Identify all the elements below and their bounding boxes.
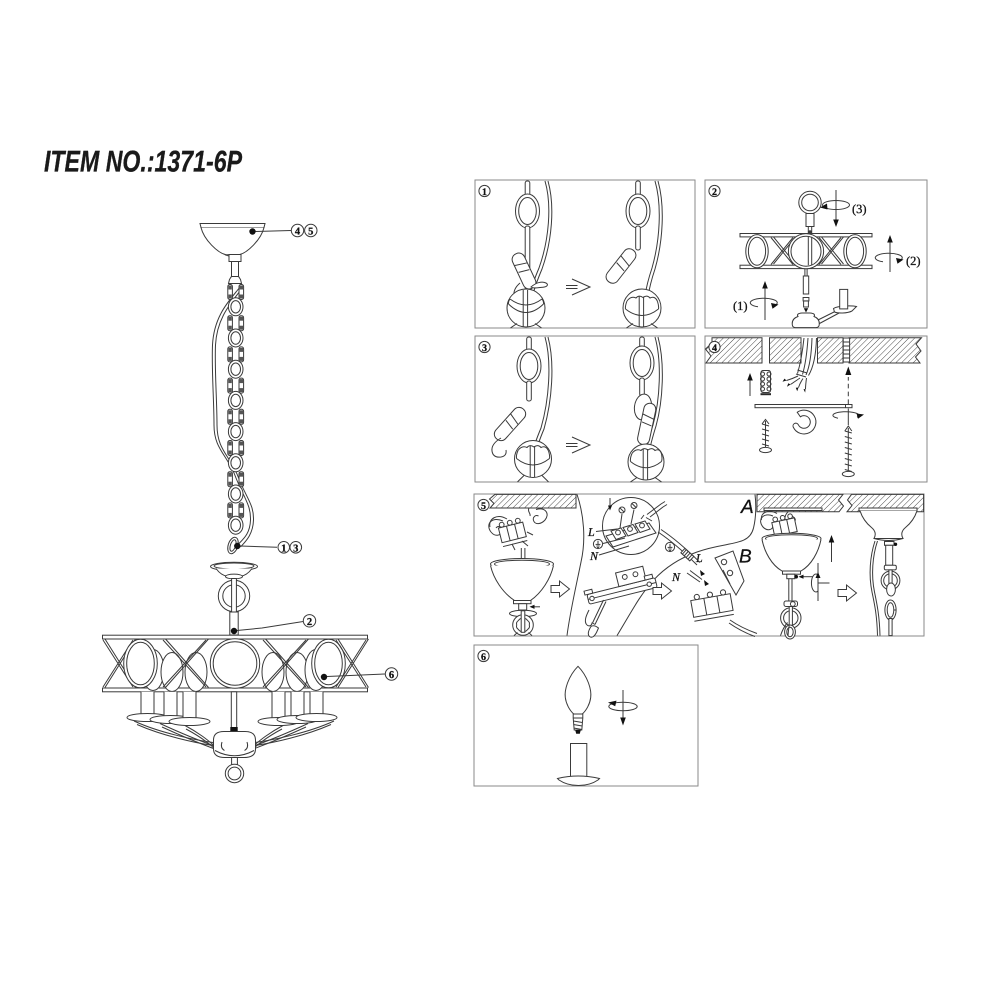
svg-text:4: 4: [295, 227, 301, 238]
svg-text:3: 3: [293, 544, 298, 555]
svg-text:1: 1: [281, 544, 286, 555]
svg-text:(2): (2): [906, 254, 921, 268]
svg-text:B: B: [739, 547, 752, 568]
svg-text:N: N: [671, 570, 681, 584]
svg-text:2: 2: [712, 187, 717, 198]
svg-text:3: 3: [482, 343, 487, 354]
svg-text:L: L: [695, 551, 703, 565]
svg-text:1: 1: [482, 187, 487, 198]
svg-text:(3): (3): [852, 202, 867, 216]
svg-text:6: 6: [389, 670, 394, 681]
svg-text:4: 4: [712, 343, 717, 354]
svg-text:L: L: [587, 525, 595, 539]
svg-text:(1): (1): [733, 299, 748, 313]
svg-text:ITEM NO.:1371-6P: ITEM NO.:1371-6P: [44, 146, 243, 179]
svg-text:5: 5: [308, 227, 313, 238]
svg-text:2: 2: [307, 617, 312, 628]
svg-text:6: 6: [481, 652, 486, 663]
svg-text:A: A: [740, 497, 754, 518]
svg-text:5: 5: [481, 501, 486, 512]
svg-text:N: N: [589, 549, 599, 563]
